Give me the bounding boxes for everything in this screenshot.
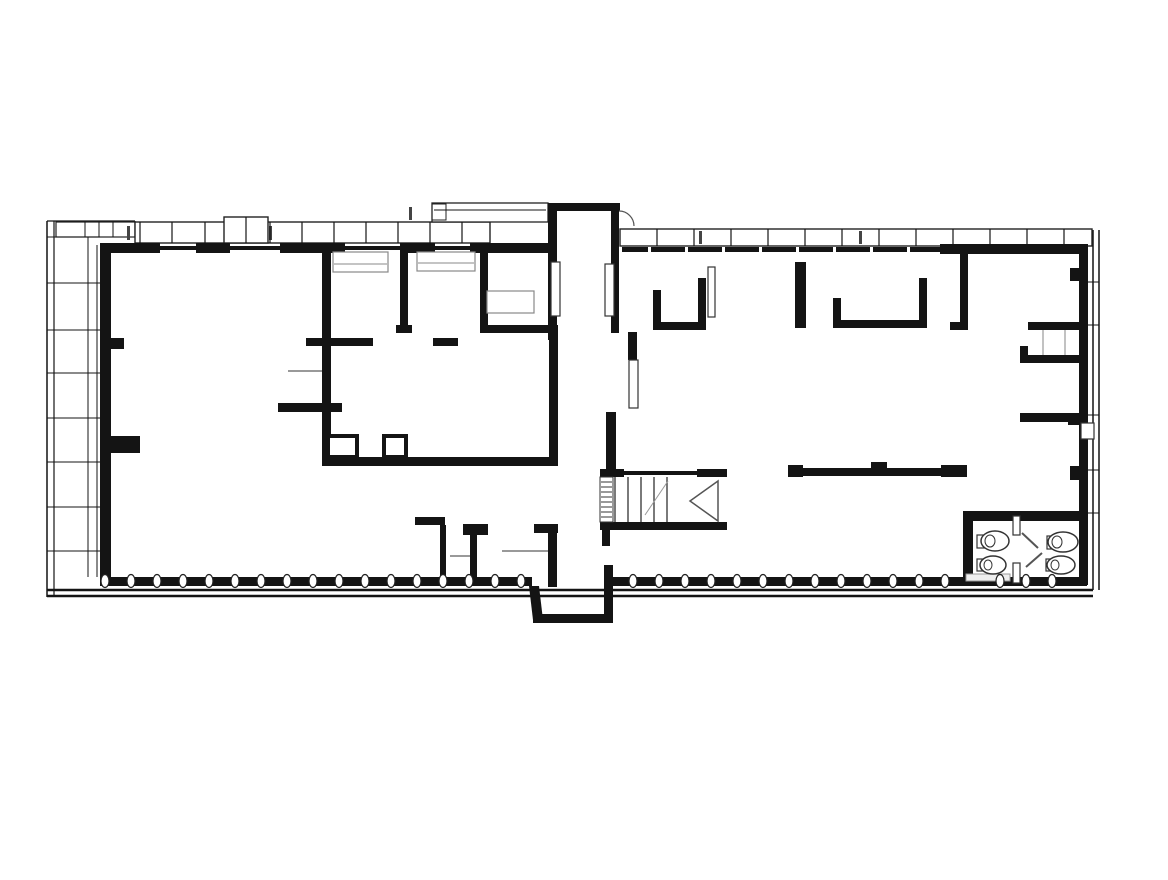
floor-plan-canvas bbox=[0, 0, 1168, 880]
floor-plan-drawing bbox=[0, 0, 1168, 880]
toilet-room bbox=[977, 516, 1078, 583]
window-band-top-left bbox=[127, 203, 548, 243]
facade-grid-strip bbox=[47, 221, 135, 577]
window-band-top-right bbox=[620, 229, 1092, 246]
outer-frame bbox=[47, 221, 1099, 597]
stairs bbox=[600, 477, 718, 522]
walls bbox=[100, 203, 1088, 623]
